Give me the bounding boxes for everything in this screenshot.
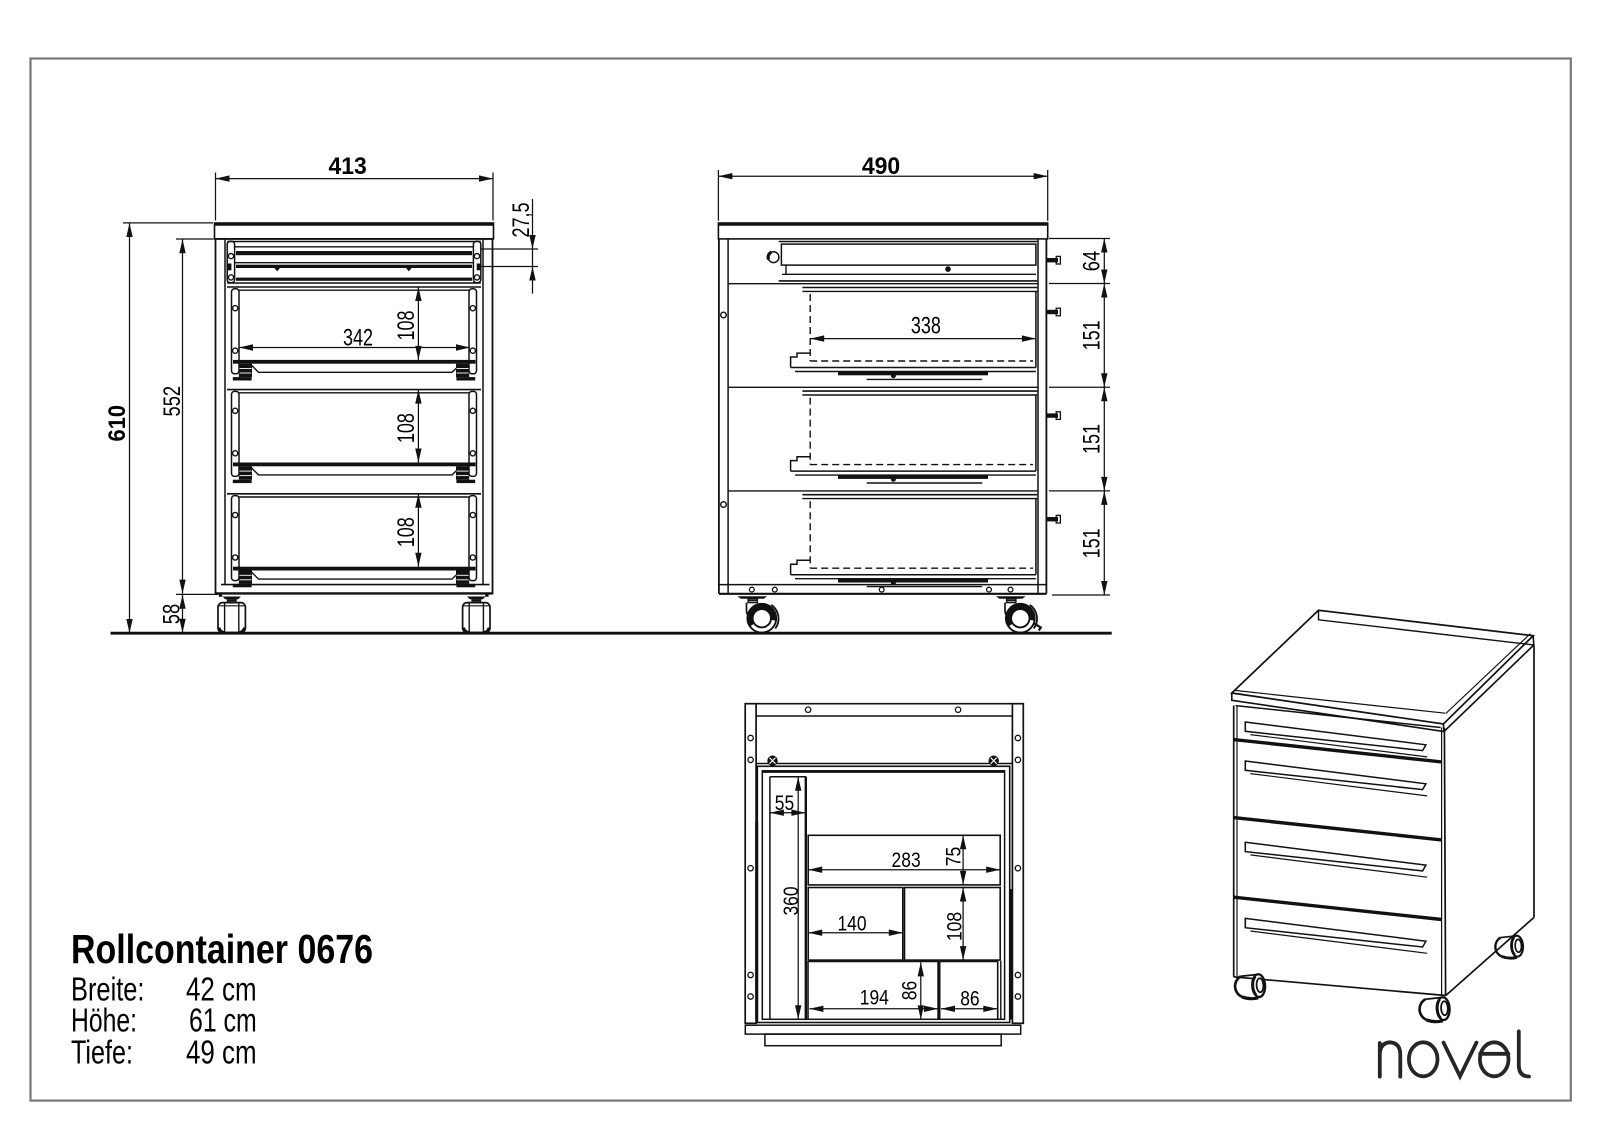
svg-text:552: 552 xyxy=(159,386,186,417)
svg-text:151: 151 xyxy=(1078,528,1105,558)
svg-text:Rollcontainer 0676: Rollcontainer 0676 xyxy=(71,926,373,972)
svg-text:108: 108 xyxy=(393,517,420,547)
svg-text:64: 64 xyxy=(1078,251,1105,271)
svg-text:27,5: 27,5 xyxy=(508,202,535,237)
svg-text:151: 151 xyxy=(1078,320,1105,350)
svg-text:108: 108 xyxy=(943,912,967,941)
svg-text:108: 108 xyxy=(393,413,420,443)
svg-text:360: 360 xyxy=(779,886,803,915)
svg-text:108: 108 xyxy=(393,311,420,341)
svg-text:610: 610 xyxy=(104,405,131,442)
svg-text:75: 75 xyxy=(942,847,966,866)
svg-text:342: 342 xyxy=(343,324,373,351)
svg-text:58: 58 xyxy=(159,604,186,624)
svg-text:151: 151 xyxy=(1078,424,1105,454)
svg-text:55: 55 xyxy=(775,791,794,815)
svg-text:86: 86 xyxy=(897,981,921,1000)
svg-text:413: 413 xyxy=(328,153,366,180)
svg-text:194: 194 xyxy=(860,985,889,1009)
svg-text:Tiefe:: Tiefe: xyxy=(71,1033,133,1070)
svg-text:49 cm: 49 cm xyxy=(186,1033,257,1070)
svg-text:338: 338 xyxy=(911,313,941,340)
svg-text:86: 86 xyxy=(960,986,979,1010)
svg-text:490: 490 xyxy=(862,153,900,180)
svg-text:283: 283 xyxy=(892,848,921,872)
svg-text:140: 140 xyxy=(837,912,866,936)
